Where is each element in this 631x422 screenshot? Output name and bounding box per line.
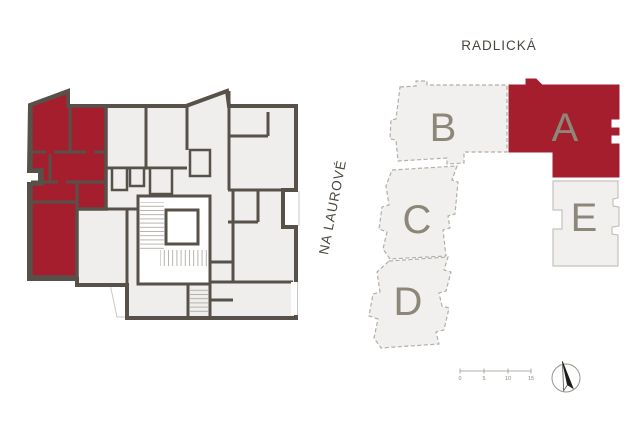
north-arrow-icon <box>552 360 580 392</box>
unit-floor-plan <box>29 91 299 318</box>
elevator-shaft <box>166 210 198 244</box>
scale-tick-5: 5 <box>482 376 485 382</box>
street-label-na-laurove: NA LAUROVÉ <box>316 158 349 255</box>
terrace-outline <box>110 284 127 317</box>
block-label-d: D <box>394 280 423 324</box>
scale-bar: 0 5 10 15 <box>458 369 534 383</box>
scale-tick-15: 15 <box>528 376 534 382</box>
block-label-c: C <box>403 198 432 242</box>
block-label-e: E <box>571 196 598 240</box>
scale-tick-10: 10 <box>505 376 511 382</box>
block-label-b: B <box>430 106 457 150</box>
stair-flight-lower <box>190 287 208 315</box>
stair-flight-vertical <box>140 202 164 252</box>
street-label-radlicka: RADLICKÁ <box>461 38 537 53</box>
block-label-a: A <box>552 106 579 150</box>
floorplan-page: RADLICKÁ NA LAUROVÉ B A C D E 0 5 10 15 <box>0 0 631 422</box>
scale-tick-0: 0 <box>458 376 461 382</box>
stair-flight-horizontal <box>160 250 210 266</box>
site-plan: RADLICKÁ NA LAUROVÉ B A C D E 0 5 10 15 <box>316 38 619 392</box>
plan-svg: RADLICKÁ NA LAUROVÉ B A C D E 0 5 10 15 <box>0 0 631 422</box>
